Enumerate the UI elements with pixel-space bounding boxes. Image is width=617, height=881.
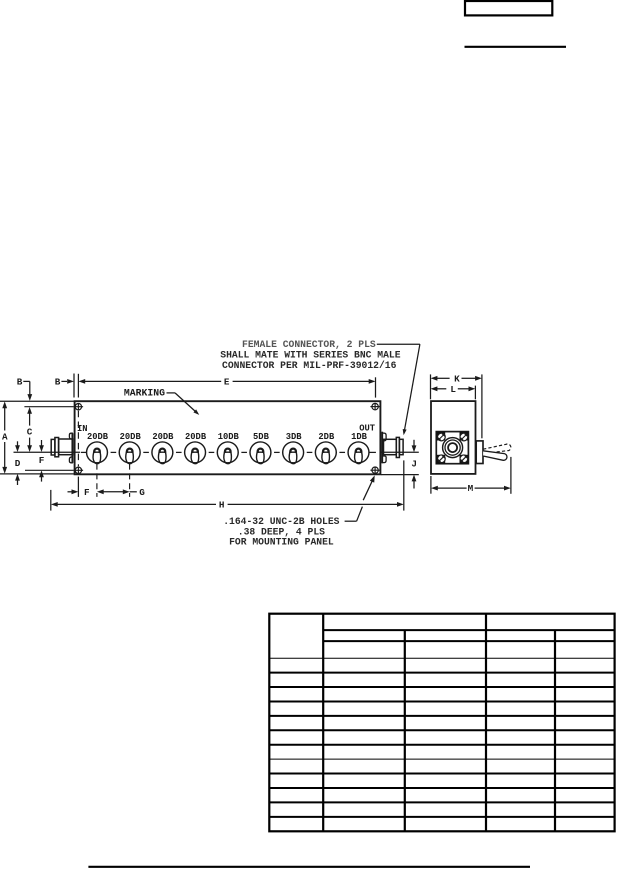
svg-text:MARKING: MARKING: [124, 388, 165, 399]
svg-text:D: D: [15, 458, 21, 469]
svg-text:F: F: [84, 487, 90, 498]
svg-text:E: E: [224, 377, 230, 388]
svg-text:CONNECTOR PER MIL-PRF-39012/16: CONNECTOR PER MIL-PRF-39012/16: [222, 360, 397, 371]
svg-text:K: K: [454, 373, 460, 384]
svg-text:F: F: [39, 455, 45, 466]
svg-text:5DB: 5DB: [253, 432, 270, 442]
svg-text:1DB: 1DB: [351, 432, 368, 442]
svg-text:L: L: [450, 384, 456, 395]
svg-text:2DB: 2DB: [318, 432, 335, 442]
svg-text:20DB: 20DB: [152, 432, 174, 442]
svg-text:J: J: [411, 458, 417, 469]
svg-text:H: H: [219, 499, 225, 510]
svg-text:A: A: [2, 431, 8, 442]
svg-text:FEMALE CONNECTOR, 2 PLS: FEMALE CONNECTOR, 2 PLS: [242, 339, 376, 350]
svg-text:FOR MOUNTING PANEL: FOR MOUNTING PANEL: [229, 537, 334, 548]
svg-text:20DB: 20DB: [87, 432, 109, 442]
svg-text:10DB: 10DB: [218, 432, 240, 442]
svg-text:B: B: [17, 377, 23, 388]
svg-text:20DB: 20DB: [185, 432, 207, 442]
svg-text:C: C: [27, 426, 33, 437]
svg-text:3DB: 3DB: [286, 432, 303, 442]
svg-text:B: B: [55, 377, 61, 388]
svg-text:G: G: [139, 487, 145, 498]
svg-text:20DB: 20DB: [120, 432, 142, 442]
svg-text:M: M: [468, 483, 474, 494]
